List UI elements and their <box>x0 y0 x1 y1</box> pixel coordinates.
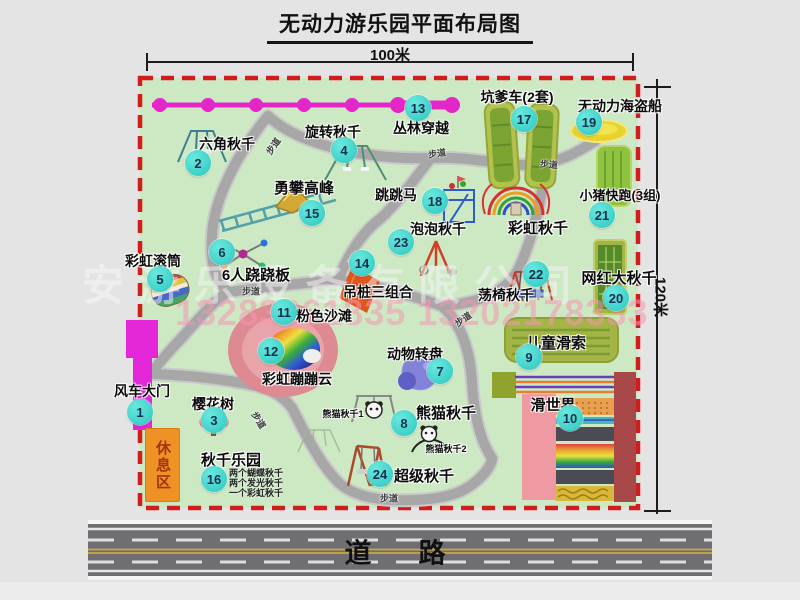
attraction-label-21: 小猪快跑(3组) <box>580 185 661 204</box>
attraction-badge-20: 20 <box>603 285 629 311</box>
attraction-badge-15: 15 <box>299 200 325 226</box>
attraction-badge-13: 13 <box>405 95 431 121</box>
attraction-label-24: 超级秋千 <box>394 465 454 486</box>
attraction-badge-6: 6 <box>209 239 235 265</box>
attraction-label-22: 荡椅秋千 <box>478 285 534 305</box>
attraction-badge-10: 10 <box>557 405 583 431</box>
attraction-badge-5: 5 <box>147 266 173 292</box>
attraction-badge-8: 8 <box>391 410 417 436</box>
attraction-badge-24: 24 <box>367 461 393 487</box>
rainbow-swing-label: 彩虹秋千 <box>508 217 568 238</box>
attraction-label-23: 泡泡秋千 <box>410 219 466 239</box>
attraction-badge-22: 22 <box>523 261 549 287</box>
attraction-label-1: 风车大门 <box>114 381 170 401</box>
attraction-label-14: 吊桩三组合 <box>343 282 413 302</box>
walkway-label-3: 步道 <box>539 157 558 172</box>
attraction-badge-23: 23 <box>388 229 414 255</box>
attraction-badge-2: 2 <box>185 150 211 176</box>
attraction-label-18: 跳跳马 <box>375 185 417 205</box>
attraction-badge-19: 19 <box>576 109 602 135</box>
attraction-badge-14: 14 <box>349 250 375 276</box>
attraction-label-15: 勇攀高峰 <box>274 177 334 198</box>
attraction-label-11: 粉色沙滩 <box>296 306 352 326</box>
attraction-label-2: 六角秋千 <box>199 134 255 154</box>
road-label: 道 路 <box>345 532 456 571</box>
attraction-label-4: 旋转秋千 <box>305 122 361 142</box>
attraction-badge-3: 3 <box>201 407 227 433</box>
panda-swing-1-label: 熊猫秋千1 <box>322 407 363 420</box>
attraction-badge-18: 18 <box>422 188 448 214</box>
attraction-badge-12: 12 <box>258 338 284 364</box>
width-dimension-label: 100米 <box>370 44 410 65</box>
attraction-badge-11: 11 <box>271 299 297 325</box>
attraction-badge-17: 17 <box>511 106 537 132</box>
attraction-label-17: 坑爹车(2套) <box>480 87 553 107</box>
attraction-badge-1: 1 <box>127 399 153 425</box>
walkway-label-6: 步道 <box>380 492 398 505</box>
attraction-badge-9: 9 <box>516 344 542 370</box>
attraction-badge-7: 7 <box>427 358 453 384</box>
swing-park-note-3: 一个彩虹秋千 <box>229 486 283 499</box>
park-layout-page: 无动力游乐园平面布局图 100米 120米 休息区 安游乐设备有限公司 1328… <box>0 0 800 600</box>
attraction-label-6: 6人跷跷板 <box>222 264 290 285</box>
rest-area-box: 休息区 <box>145 428 180 502</box>
attraction-label-13: 丛林穿越 <box>393 118 449 138</box>
attraction-label-12: 彩虹蹦蹦云 <box>262 369 332 389</box>
panda-swing-2-label: 熊猫秋千2 <box>425 442 466 455</box>
walkway-label-4: 步道 <box>242 285 260 298</box>
attraction-label-8: 熊猫秋千 <box>416 402 476 423</box>
walkway-label-2: 步道 <box>427 145 447 160</box>
attraction-badge-21: 21 <box>589 202 615 228</box>
attraction-badge-4: 4 <box>331 137 357 163</box>
page-title: 无动力游乐园平面布局图 <box>267 8 533 44</box>
attraction-badge-16: 16 <box>201 466 227 492</box>
